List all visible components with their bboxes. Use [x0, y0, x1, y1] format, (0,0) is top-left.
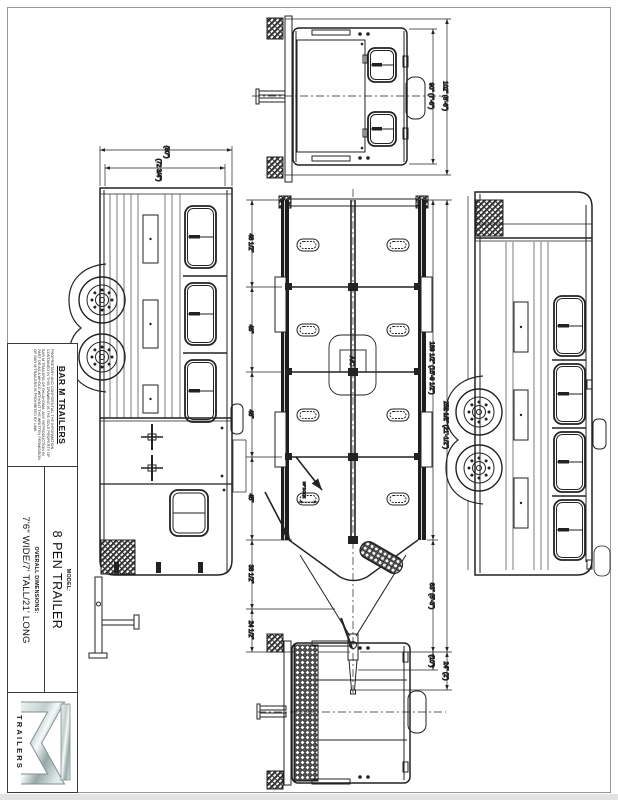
- logo-bar: [61, 704, 70, 780]
- front-elevation-view: 90" (7'-6") 102" (8'-6"): [252, 16, 451, 182]
- title-block: BAR M TRAILERS PROPRIETARY AND CONFIDENT…: [7, 343, 78, 793]
- dim-plan-left-5: 38 1/2": [247, 565, 253, 584]
- dim-plan-left-2: 48": [247, 325, 253, 334]
- dim-side-outer: (80"): [163, 146, 169, 159]
- model-label: MODEL:: [64, 471, 72, 689]
- logo-m-shape: [21, 707, 56, 779]
- side-right-panels: [514, 302, 528, 528]
- front-window-lower: [368, 112, 396, 146]
- rear-ramp-mesh: [294, 645, 318, 781]
- step-plate: [357, 539, 405, 577]
- side-right-slats: [506, 242, 548, 570]
- escape-bubble-right: [593, 419, 606, 449]
- dim-plan-coupler: (10"): [428, 655, 434, 668]
- side-access-panels: [143, 215, 158, 413]
- rear-elevation-view: [257, 634, 446, 789]
- bar-m-logo: TRAILERS: [8, 693, 77, 790]
- dim-plan-tongue: 24" (2'): [442, 662, 448, 681]
- sheet-edge-shadow: [0, 794, 618, 800]
- front-jack: [256, 89, 285, 104]
- plan-left-dim-chain: [246, 200, 350, 652]
- dim-front-outer: 102" (8'-6"): [442, 81, 448, 111]
- company-name: BAR M TRAILERS: [54, 348, 70, 462]
- side-slats: [110, 194, 180, 418]
- plan-view: A/C 36" DOOR: [246, 189, 452, 696]
- nose-latches: [141, 424, 223, 481]
- side-pen-doors: [185, 206, 216, 422]
- dim-plan-left-4: 45": [247, 494, 253, 503]
- trailer-drawing-sheet: 90" (7'-6") 102" (8'-6") (80") (72 3/4"): [0, 0, 618, 800]
- dim-plan-nose: 63" (5'-3"): [428, 583, 434, 609]
- roof-bubble: [406, 77, 425, 119]
- dim-front-inner: 90" (7'-6"): [428, 83, 434, 109]
- title-block-model-cell: MODEL: 8 PEN TRAILER OVERALL DIMENSIONS:…: [8, 467, 77, 693]
- overall-dimensions-value: 7'6" WIDE/7' TALL/21' LONG: [20, 473, 32, 687]
- nose-door-swing: 36" DOOR: [265, 457, 322, 540]
- model-value: 8 PEN TRAILER: [50, 475, 65, 685]
- title-block-divider: [44, 467, 45, 692]
- dim-plan-left-6: 24 1/2": [247, 621, 253, 640]
- plan-right-dim-chain: [356, 200, 452, 690]
- dim-plan-left-1: 48 1/2": [247, 234, 253, 253]
- dim-plan-door: 36" DOOR: [302, 482, 306, 499]
- tongue-jack: [89, 577, 139, 658]
- dim-plan-overall: 252 1/2" (21'-1/2"): [442, 401, 448, 449]
- drawing-views: 90" (7'-6") 102" (8'-6") (80") (72 3/4"): [0, 0, 618, 800]
- ac-unit: A/C: [329, 335, 376, 395]
- dim-side-inner: (72 3/4"): [155, 159, 161, 182]
- dim-plan-box: 189 1/2" (15'-9 1/2"): [428, 341, 434, 394]
- logo-trailers-text: TRAILERS: [15, 715, 24, 770]
- tandem-wheels-right: [446, 376, 502, 504]
- front-window-upper: [368, 48, 396, 82]
- proprietary-notice: PROPRIETARY AND CONFIDENTIAL THE INFORMA…: [27, 349, 54, 461]
- fender-flare: [594, 546, 610, 576]
- title-block-logo-cell: TRAILERS: [8, 693, 77, 792]
- title-block-company-cell: BAR M TRAILERS PROPRIETARY AND CONFIDENT…: [8, 344, 77, 467]
- rock-guard-right: [476, 200, 503, 236]
- nose-window: [170, 489, 225, 536]
- rear-jack: [257, 704, 286, 719]
- dim-plan-left-3: 48": [247, 410, 253, 419]
- open-vent-door: [233, 440, 246, 492]
- overall-dimensions-label: OVERALL DIMENSIONS:: [32, 471, 40, 689]
- side-elevation-left-view: (80") (72 3/4"): [69, 146, 246, 658]
- escape-bubble: [231, 404, 243, 434]
- side-elevation-right-view: [446, 192, 610, 576]
